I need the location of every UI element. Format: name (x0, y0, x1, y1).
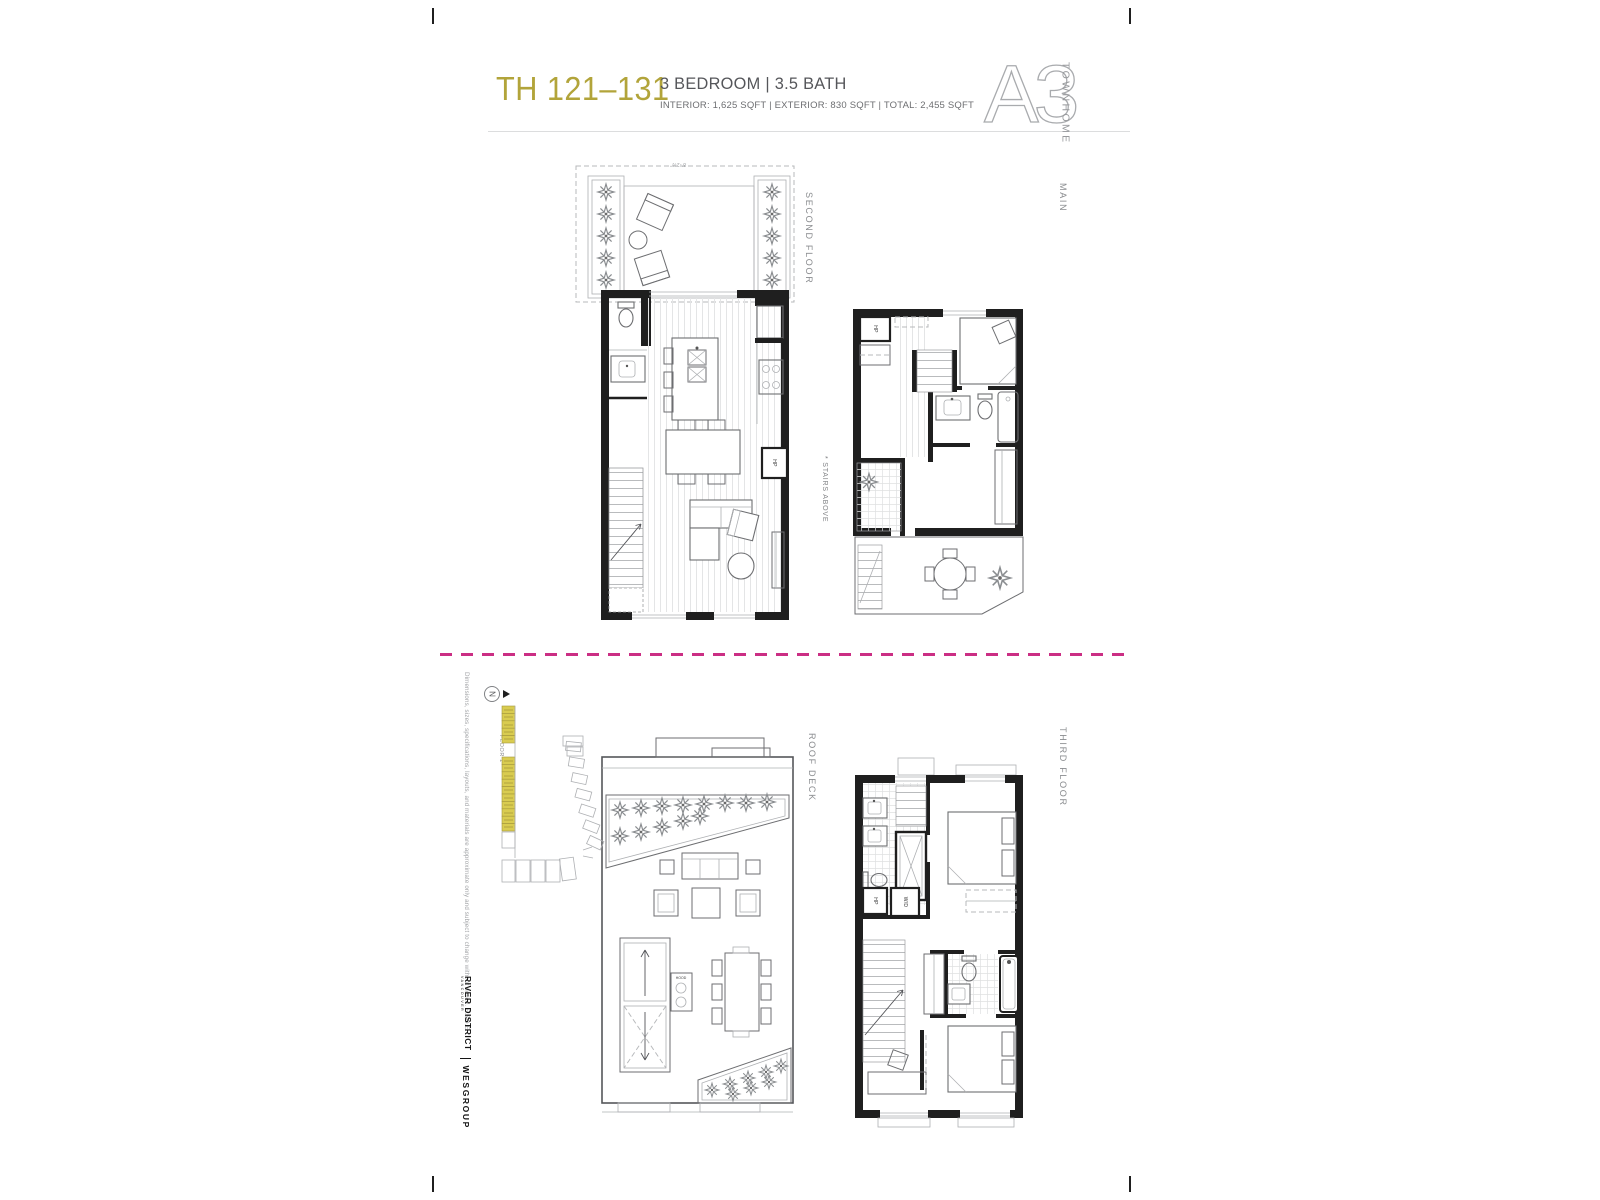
hp-unit: HP (863, 888, 887, 914)
wardrobe (995, 450, 1017, 524)
north-arrow: N (485, 687, 511, 702)
terrace-dimension: 8'-2½" (670, 161, 686, 168)
svg-text:HP: HP (872, 325, 878, 333)
main-floor-label: MAIN (1058, 183, 1067, 212)
washer-dryer: W/D (891, 888, 919, 916)
bathroom (936, 392, 1018, 442)
lounge (654, 853, 760, 918)
patio (855, 537, 1023, 614)
river-district-sub: VANCOUVER (460, 976, 464, 1051)
unit-range-title: TH 121–131 (496, 70, 670, 108)
master-bedroom (948, 812, 1016, 912)
section-divider (440, 653, 1130, 656)
main-floor-plan: HP (853, 309, 1023, 614)
hp-unit: HP (762, 448, 787, 478)
ensuite (863, 783, 926, 905)
stairs (609, 468, 643, 612)
area-summary: INTERIOR: 1,625 SQFT | EXTERIOR: 830 SQF… (660, 100, 974, 111)
roof-deck-label: ROOF DECK (807, 733, 816, 802)
floorplan-sheet: A3 8'-2½" (0, 0, 1600, 1200)
bed-bath-spec: 3 BEDROOM | 3.5 BATH (660, 74, 847, 94)
terrace: 8'-2½" (576, 161, 794, 302)
hp-unit: HP (860, 317, 890, 341)
svg-text:HP: HP (771, 459, 777, 467)
entry-closet (860, 345, 890, 365)
stairs-above-landing (857, 463, 901, 531)
bathroom-2 (924, 954, 1018, 1014)
plans-canvas: A3 8'-2½" (0, 0, 1600, 1200)
roof-deck-plan: HOOD (602, 738, 793, 1112)
dining-table (666, 420, 740, 484)
outdoor-dining (712, 947, 771, 1037)
planter-bottom (698, 1048, 791, 1103)
third-floor-plan: HP W/D (855, 758, 1023, 1127)
svg-text:W/D: W/D (902, 897, 908, 908)
stairs (863, 940, 905, 1062)
third-floor-label: THIRD FLOOR (1058, 727, 1067, 807)
stairs-above-note: * STAIRS ABOVE (821, 456, 828, 522)
river-district-logo: RIVER DISTRICT VANCOUVER (460, 976, 472, 1051)
svg-text:N: N (488, 691, 497, 697)
second-floor-label: SECOND FLOOR (804, 192, 813, 284)
key-plan: N FLOOR 1 (485, 687, 604, 883)
stairs-upper (917, 350, 952, 392)
river-district-wordmark: RIVER DISTRICT (464, 976, 473, 1051)
wesgroup-wordmark: WESGROUP (461, 1066, 471, 1129)
second-floor-plan: 8'-2½" (576, 161, 794, 620)
stair-bulkhead (620, 938, 670, 1072)
header-rule (488, 131, 1130, 132)
bedroom (960, 318, 1016, 384)
bbq: HOOD (671, 973, 692, 1011)
brand-divider (461, 1058, 472, 1059)
plan-type-label: TOWNHOME (1060, 62, 1071, 145)
site-outline (502, 706, 604, 882)
brand-lockup: RIVER DISTRICT VANCOUVER WESGROUP (460, 976, 472, 1126)
svg-text:HP: HP (872, 897, 878, 905)
svg-text:HOOD: HOOD (676, 976, 687, 980)
disclaimer-text: Dimensions, sizes, specifications, layou… (463, 672, 469, 1017)
